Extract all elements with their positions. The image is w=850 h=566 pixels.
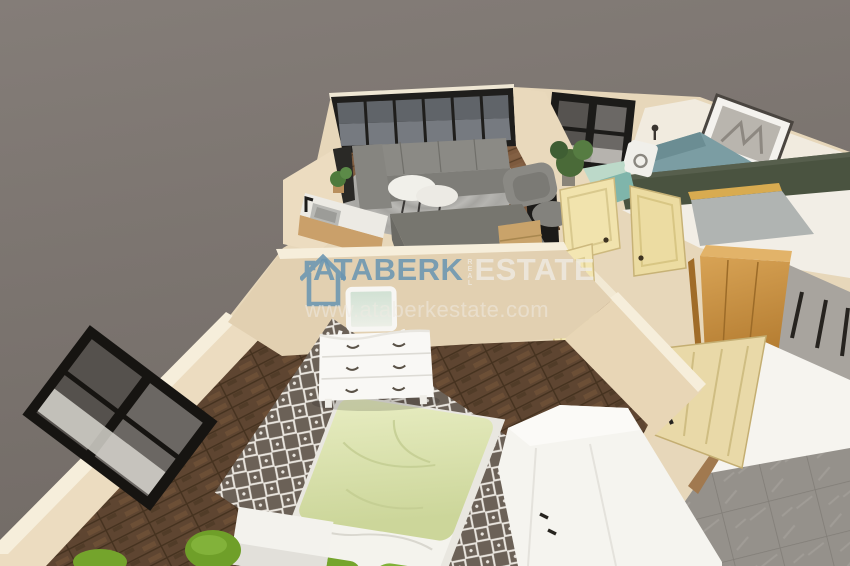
door-2 xyxy=(630,186,686,276)
green-stool-highlight xyxy=(191,535,227,555)
apartment-render: ATABERK REAL ESTATE www.ataberkestate.co… xyxy=(0,0,850,566)
scene-svg xyxy=(0,0,850,566)
